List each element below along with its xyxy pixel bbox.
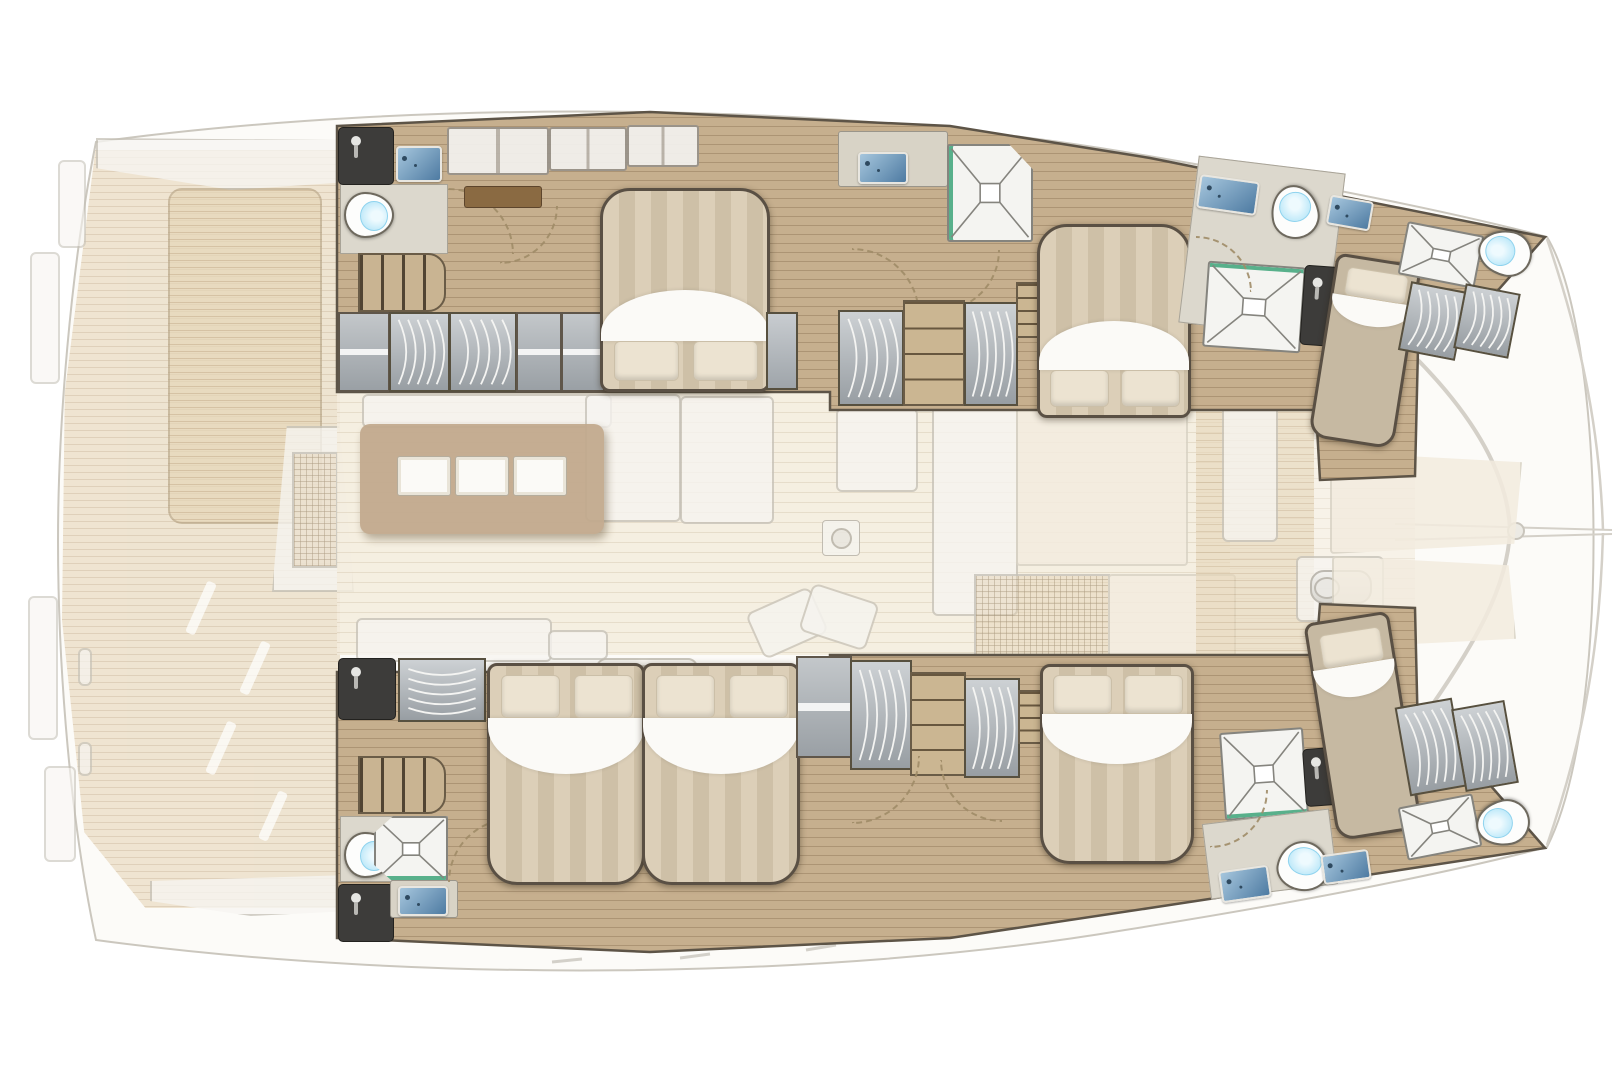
pillow: [656, 675, 716, 718]
pillow: [1121, 370, 1179, 408]
stbd-mid-wardrobe: [850, 660, 912, 770]
pillow: [1053, 675, 1111, 714]
port-mid-wardrobe: [964, 302, 1018, 406]
toilet-bowl-water: [360, 201, 388, 232]
hull-stroke-layer: [0, 0, 1620, 1080]
port-mid-dresser: [903, 300, 965, 406]
catamaran-deck-plan: [0, 0, 1620, 1080]
port-mid-double-berth: [1037, 224, 1191, 418]
hanging-clothes-glyph: [400, 660, 484, 720]
port-aft-locker: [516, 312, 562, 392]
pillow: [614, 341, 678, 381]
stbd-aft-shower-cubicle: [338, 884, 394, 942]
faucet-icon: [1226, 879, 1232, 885]
pillow: [729, 675, 789, 718]
shower-mixer-icon: [351, 136, 361, 146]
hanging-clothes-glyph: [451, 314, 515, 390]
hanging-clothes-glyph: [391, 314, 448, 390]
faucet-icon: [405, 895, 410, 900]
stbd-mid-locker: [796, 656, 852, 758]
turned-sheet: [643, 718, 798, 774]
turned-sheet: [488, 718, 643, 774]
toilet-bowl-water: [1285, 845, 1324, 878]
port-aft-shower-cubicle: [338, 127, 394, 185]
stbd-aft-double-berth-2: [642, 663, 800, 885]
hanging-clothes-glyph: [1456, 286, 1519, 357]
stbd-aft-washbasin: [398, 886, 448, 916]
shower-mixer-icon: [351, 893, 361, 903]
toilet-bowl-water: [1482, 233, 1518, 269]
shower-mixer-icon: [1310, 757, 1321, 768]
port-aft-locker: [338, 312, 390, 392]
shower-tray-glyph: [1400, 796, 1480, 859]
stbd-bedside-shelf: [1018, 690, 1042, 744]
port-aft-wardrobe: [449, 312, 517, 392]
hanging-clothes-glyph: [966, 304, 1016, 404]
turned-sheet: [1042, 714, 1193, 764]
pillow: [501, 675, 561, 718]
stbd-aft-wardrobe: [398, 658, 486, 722]
shower-tray-glyph: [376, 818, 446, 880]
toilet-bowl-water: [1277, 189, 1314, 224]
hanging-clothes-glyph: [840, 312, 902, 404]
shower-tray-glyph: [949, 146, 1031, 240]
turned-sheet: [1039, 321, 1190, 370]
shower-mixer-icon: [351, 667, 361, 677]
pillow: [1050, 370, 1108, 408]
faucet-icon: [1334, 204, 1340, 210]
stbd-aft-double-berth: [487, 663, 645, 885]
pillow: [1124, 675, 1182, 714]
stbd-companionway-steps: [358, 756, 446, 814]
pillow: [693, 341, 757, 381]
port-overhead-locker: [627, 125, 699, 167]
faucet-icon: [1206, 185, 1212, 191]
stbd-mid-double-berth: [1040, 664, 1194, 864]
faucet-icon: [402, 156, 407, 161]
stbd-aft-shower: [374, 816, 448, 882]
port-mid-washbasin: [858, 152, 908, 184]
hanging-clothes-glyph: [1453, 702, 1516, 789]
port-overhead-locker: [447, 127, 549, 175]
port-companionway-steps: [358, 253, 446, 312]
port-seat-bench: [766, 312, 798, 390]
shower-mixer-icon: [1313, 277, 1324, 288]
port-overhead-locker: [549, 127, 627, 171]
port-mid-shower: [947, 144, 1033, 242]
port-aft-locker: [561, 312, 605, 392]
faucet-icon: [865, 161, 870, 166]
toilet-bowl-water: [1480, 805, 1516, 841]
stbd-aft-locker-dark: [338, 658, 396, 720]
faucet-icon: [1328, 863, 1334, 869]
port-vanity-desk: [464, 186, 542, 208]
port-mid-wardrobe: [838, 310, 904, 406]
hanging-clothes-glyph: [852, 662, 910, 768]
port-aft-wardrobe: [389, 312, 450, 392]
port-aft-double-berth: [600, 188, 770, 392]
turned-sheet: [601, 290, 768, 341]
pillow: [574, 675, 634, 718]
port-aft-washbasin: [396, 146, 442, 182]
